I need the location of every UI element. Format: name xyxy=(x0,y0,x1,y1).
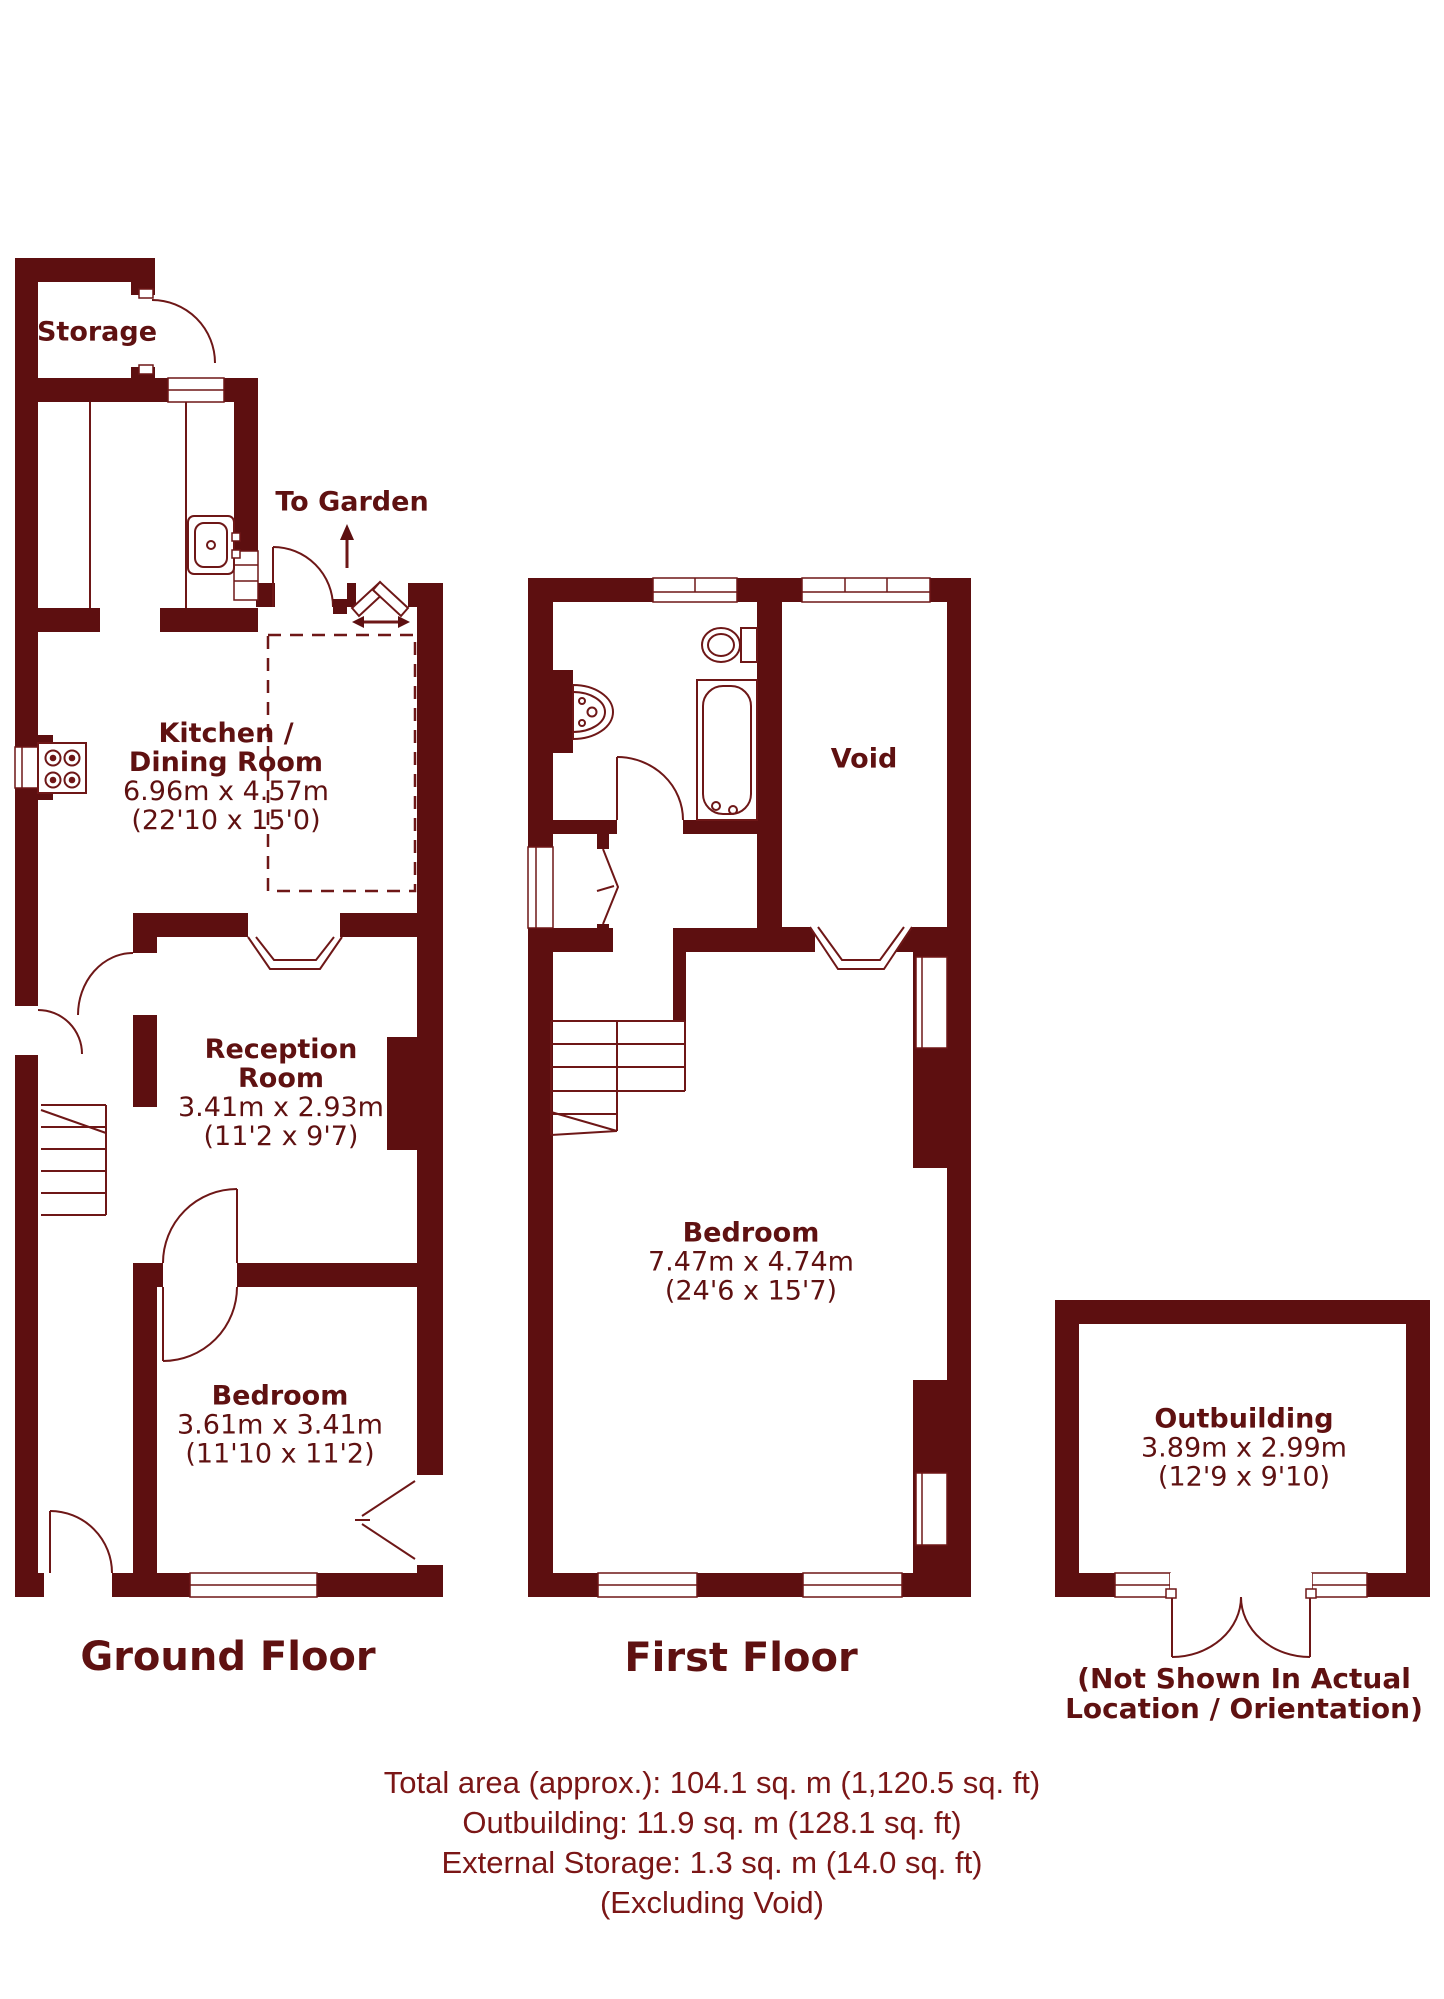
room-name: Room xyxy=(178,1064,384,1093)
room-dims-metric: 3.41m x 2.93m xyxy=(178,1093,384,1122)
bay-window xyxy=(248,937,342,969)
outbuilding-double-doors xyxy=(1172,1597,1310,1657)
window xyxy=(916,1473,947,1545)
area-summary: Total area (approx.): 104.1 sq. m (1,120… xyxy=(384,1763,1041,1923)
window xyxy=(653,578,737,602)
first-floor-title: First Floor xyxy=(624,1635,857,1681)
annotation-text: To Garden xyxy=(275,488,428,517)
room-name: Kitchen / xyxy=(123,719,329,748)
french-doors xyxy=(355,1481,415,1559)
gf-bedroom-label: Bedroom 3.61m x 3.41m (11'10 x 11'2) xyxy=(177,1382,383,1469)
bedroom-door xyxy=(163,1287,237,1361)
floorplan-page: Storage To Garden Kitchen / Dining Room … xyxy=(0,0,1444,1999)
room-dims-imperial: (22'10 x 15'0) xyxy=(123,806,329,835)
window xyxy=(916,957,947,1048)
room-name: Void xyxy=(831,745,898,774)
excluding-void-text: (Excluding Void) xyxy=(384,1883,1041,1923)
window xyxy=(1115,1573,1170,1597)
bay-window xyxy=(810,927,912,969)
basin xyxy=(573,685,613,739)
note-text: Location / Orientation) xyxy=(1065,1694,1423,1724)
toilet xyxy=(702,628,757,662)
void-label: Void xyxy=(831,745,898,774)
first-floor-plan xyxy=(528,578,971,1597)
outbuilding-openings xyxy=(1115,1573,1367,1598)
front-door xyxy=(50,1511,112,1573)
external-storage-text: External Storage: 1.3 sq. m (14.0 sq. ft… xyxy=(384,1843,1041,1883)
reception-label: Reception Room 3.41m x 2.93m (11'2 x 9'7… xyxy=(178,1035,384,1151)
closet-bifold-door xyxy=(597,849,618,924)
ff-bedroom-label: Bedroom 7.47m x 4.74m (24'6 x 15'7) xyxy=(648,1219,854,1306)
room-dims-imperial: (11'10 x 11'2) xyxy=(177,1440,383,1469)
room-name: Bedroom xyxy=(177,1382,383,1411)
reception-door xyxy=(163,1189,237,1263)
room-name: Dining Room xyxy=(123,748,329,777)
window xyxy=(168,378,224,402)
bathroom-door xyxy=(617,757,683,820)
staircase-ground xyxy=(41,1105,106,1215)
room-dims-imperial: (12'9 x 9'10) xyxy=(1141,1463,1347,1492)
to-garden-label: To Garden xyxy=(275,488,428,517)
room-dims-metric: 7.47m x 4.74m xyxy=(648,1248,854,1277)
note-text: (Not Shown In Actual xyxy=(1065,1664,1423,1694)
storage-door-arc xyxy=(152,300,215,363)
room-name: Storage xyxy=(37,318,157,347)
bathtub xyxy=(697,680,757,820)
room-dims-imperial: (11'2 x 9'7) xyxy=(178,1122,384,1151)
room-name: Reception xyxy=(178,1035,384,1064)
staircase-first xyxy=(551,1021,685,1135)
window xyxy=(803,1573,902,1597)
window xyxy=(802,578,930,602)
room-dims-imperial: (24'6 x 15'7) xyxy=(648,1277,854,1306)
window xyxy=(15,747,38,788)
hall-door-arc xyxy=(78,953,133,1015)
total-area-text: Total area (approx.): 104.1 sq. m (1,120… xyxy=(384,1763,1041,1803)
kitchen-sink xyxy=(188,516,240,574)
kitchen-label: Kitchen / Dining Room 6.96m x 4.57m (22'… xyxy=(123,719,329,835)
outbuilding-area-text: Outbuilding: 11.9 sq. m (128.1 sq. ft) xyxy=(384,1803,1041,1843)
side-door-arc xyxy=(38,1010,82,1054)
window xyxy=(1312,1573,1367,1597)
hob xyxy=(38,743,86,793)
room-name: Outbuilding xyxy=(1141,1405,1347,1434)
room-dims-metric: 6.96m x 4.57m xyxy=(123,777,329,806)
ground-floor-title: Ground Floor xyxy=(80,1634,375,1680)
window xyxy=(190,1573,317,1597)
window xyxy=(598,1573,697,1597)
storage-label: Storage xyxy=(37,318,157,347)
window xyxy=(528,847,553,928)
bifold-door xyxy=(352,582,410,628)
room-name: Bedroom xyxy=(648,1219,854,1248)
garden-door xyxy=(273,547,347,614)
first-floor-details xyxy=(551,628,912,1135)
outbuilding-label: Outbuilding 3.89m x 2.99m (12'9 x 9'10) xyxy=(1141,1405,1347,1492)
to-garden-arrow xyxy=(340,524,354,568)
room-dims-metric: 3.89m x 2.99m xyxy=(1141,1434,1347,1463)
outbuilding-note: (Not Shown In Actual Location / Orientat… xyxy=(1065,1664,1423,1724)
room-dims-metric: 3.61m x 3.41m xyxy=(177,1411,383,1440)
